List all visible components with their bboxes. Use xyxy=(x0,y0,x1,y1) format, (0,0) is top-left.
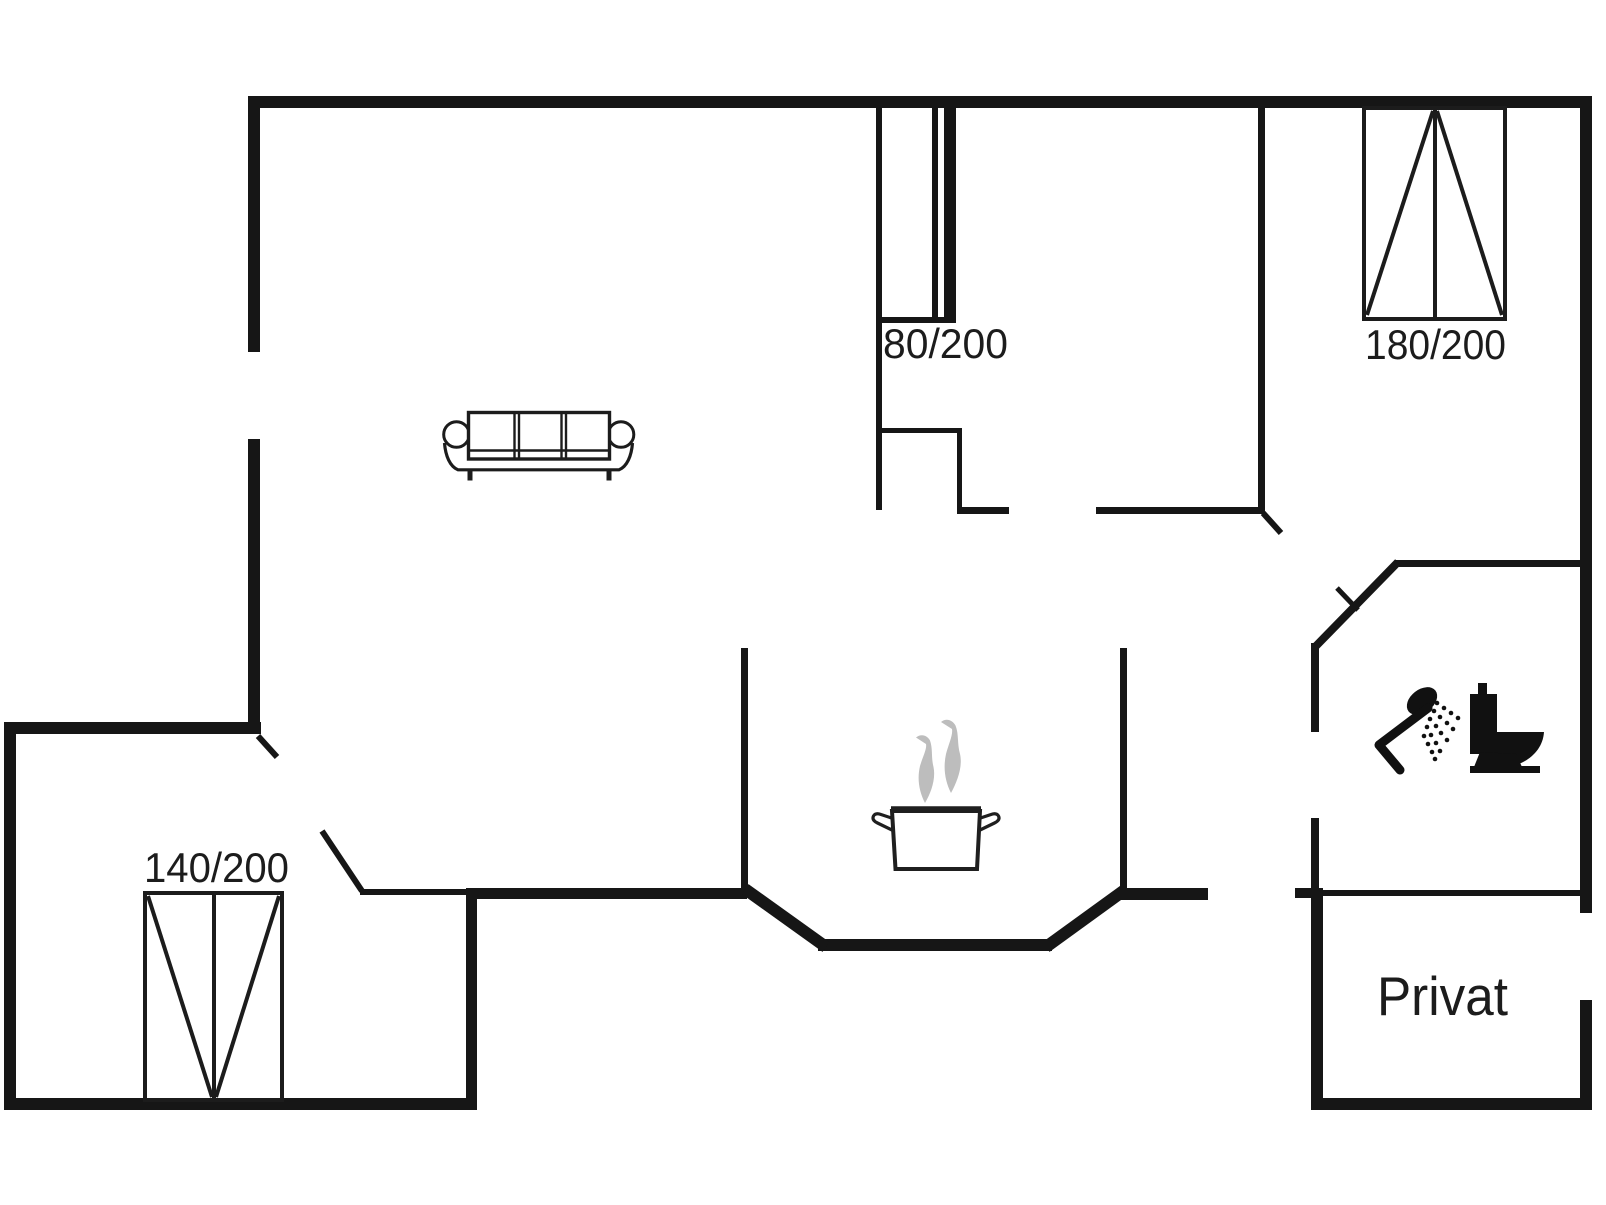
svg-text:140/200: 140/200 xyxy=(144,844,289,891)
svg-text:80/200: 80/200 xyxy=(883,320,1008,367)
svg-text:180/200: 180/200 xyxy=(1365,321,1506,368)
svg-text:Privat: Privat xyxy=(1377,965,1508,1027)
